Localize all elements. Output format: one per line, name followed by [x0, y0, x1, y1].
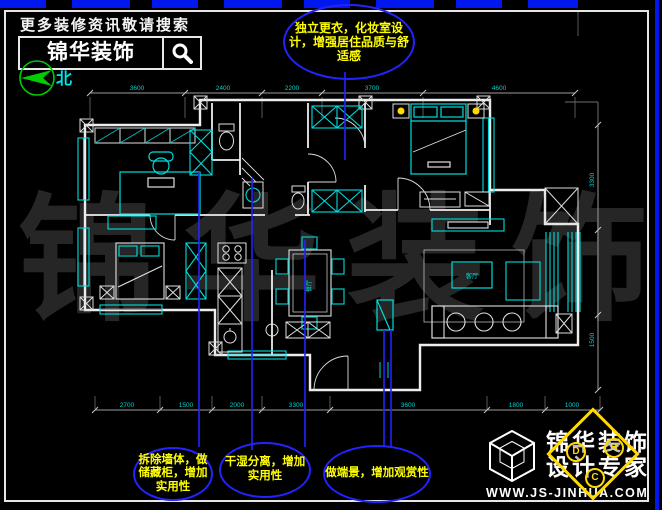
compass-label: 北 [56, 70, 72, 88]
svg-text:3700: 3700 [365, 85, 380, 92]
dining-room-label: 餐厅 [305, 280, 313, 292]
dimensions-bottom: 2700 1500 2000 3300 3600 1800 1000 [92, 396, 603, 413]
callout-endview: 做端景，增加观赏性 [323, 445, 431, 503]
svg-text:3300: 3300 [289, 402, 304, 409]
bed-icon [411, 104, 466, 174]
callout-drywet: 干湿分离，增加实用性 [219, 442, 311, 498]
badge-letter-d: D [566, 442, 586, 462]
svg-text:1800: 1800 [509, 402, 524, 409]
storage-cabinet-icon [190, 130, 212, 175]
dressing-room [312, 106, 362, 212]
cube-logo-icon [484, 428, 540, 486]
svg-text:3300: 3300 [589, 172, 596, 187]
svg-text:2000: 2000 [230, 402, 245, 409]
svg-text:1500: 1500 [179, 402, 194, 409]
svg-text:3600: 3600 [401, 402, 416, 409]
callout-dressing: 独立更衣，化妆室设计，增强居住品质与舒适感 [283, 4, 415, 80]
footer-website: WWW.JS-JINHUA.COM [486, 486, 648, 500]
callout-storage-text: 拆除墙体，做储藏柜，增加实用性 [135, 454, 211, 495]
svg-text:1000: 1000 [565, 402, 580, 409]
callout-dressing-text: 独立更衣，化妆室设计，增强居住品质与舒适感 [287, 21, 411, 63]
badge-letter-c: C [585, 468, 605, 488]
callout-endview-text: 做端景，增加观赏性 [325, 467, 429, 481]
lamp-icon [398, 108, 405, 115]
callout-drywet-text: 干湿分离，增加实用性 [221, 456, 309, 483]
badge-letter-b: B [604, 438, 624, 458]
wc-room [219, 124, 234, 150]
svg-text:2200: 2200 [285, 85, 300, 92]
svg-text:2700: 2700 [120, 402, 135, 409]
lamp-icon [473, 108, 480, 115]
nightstand-icon [393, 104, 484, 118]
cad-floorplan-screenshot: 更多装修资讯敬请搜索 锦华装饰 锦 华 装 饰 北 [0, 0, 662, 510]
chair-icon [149, 152, 173, 174]
north-arrow-icon: 北 [20, 61, 72, 95]
svg-text:4600: 4600 [492, 85, 507, 92]
callout-storage: 拆除墙体，做储藏柜，增加实用性 [133, 447, 213, 501]
svg-text:1500: 1500 [589, 332, 596, 347]
svg-text:3600: 3600 [130, 85, 145, 92]
bookshelf-icon [95, 128, 195, 143]
svg-text:2400: 2400 [216, 85, 231, 92]
living-room-label: 客厅 [466, 271, 480, 280]
